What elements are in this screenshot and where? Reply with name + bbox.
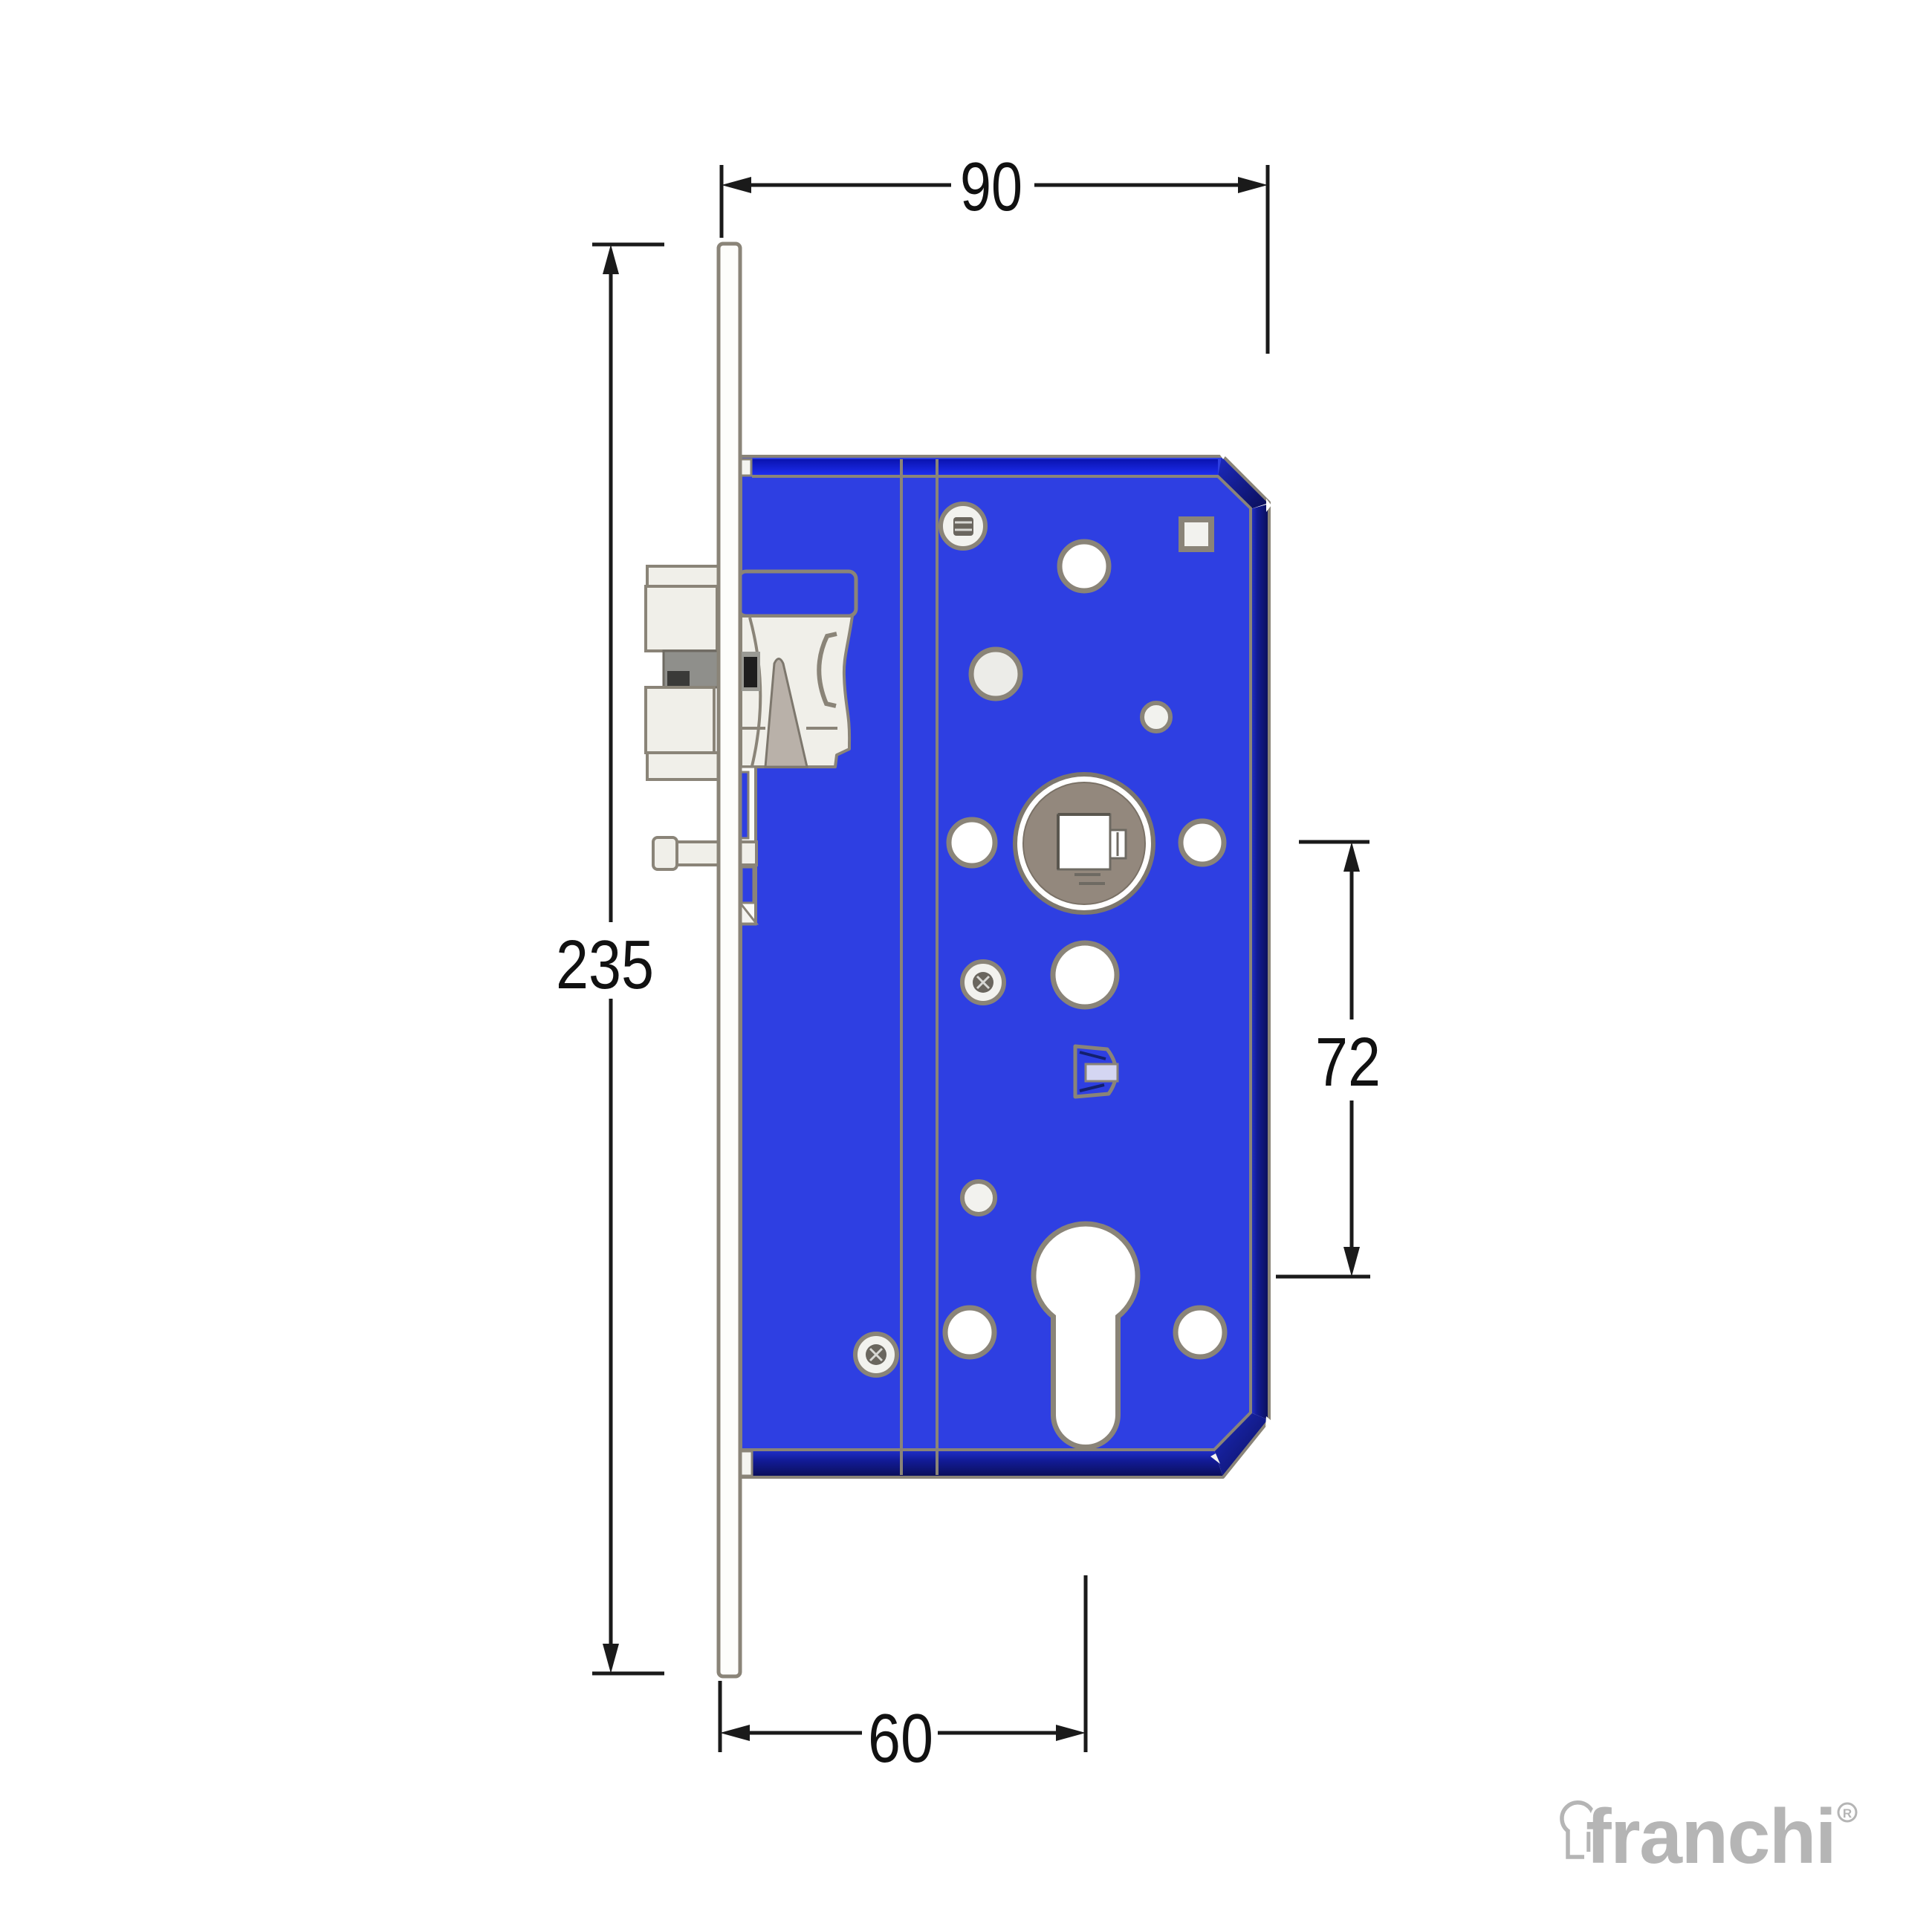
svg-text:franchi: franchi <box>1586 1794 1835 1880</box>
svg-text:235: 235 <box>556 926 654 1003</box>
svg-text:60: 60 <box>868 1699 933 1777</box>
svg-text:72: 72 <box>1315 1023 1381 1100</box>
svg-text:90: 90 <box>960 148 1022 225</box>
svg-text:R: R <box>1843 1806 1852 1821</box>
